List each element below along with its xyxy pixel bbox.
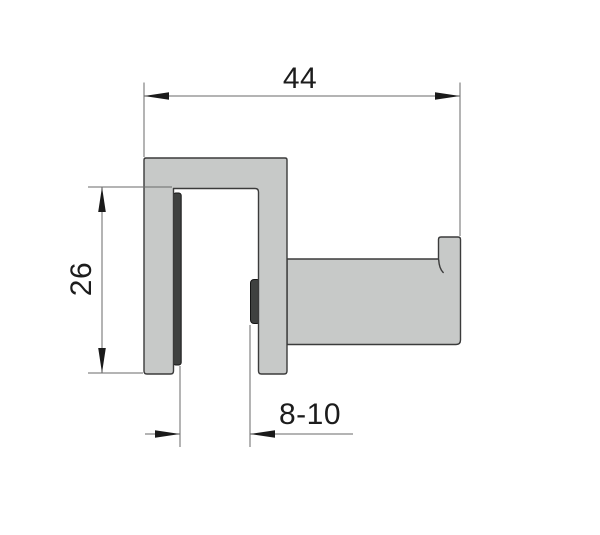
arrowhead-up-icon — [98, 187, 106, 212]
clamp-body — [144, 158, 287, 374]
glass-gasket-strip — [173, 193, 181, 365]
hook-arm — [287, 237, 461, 345]
dimension-label-clamp-depth: 26 — [65, 262, 98, 296]
technical-drawing: 44 26 8-10 — [0, 0, 600, 535]
arrowhead-right-icon — [155, 430, 180, 438]
dimension-label-overall-width: 44 — [283, 62, 317, 95]
arrowhead-left-icon — [144, 92, 169, 100]
dimension-label-glass-thickness: 8-10 — [279, 398, 341, 431]
drawing-canvas: 44 26 8-10 — [0, 0, 600, 535]
arrowhead-right-icon — [435, 92, 460, 100]
arrowhead-left-icon — [250, 430, 275, 438]
dimension-overall-width: 44 — [144, 62, 460, 236]
arrowhead-down-icon — [98, 348, 106, 373]
